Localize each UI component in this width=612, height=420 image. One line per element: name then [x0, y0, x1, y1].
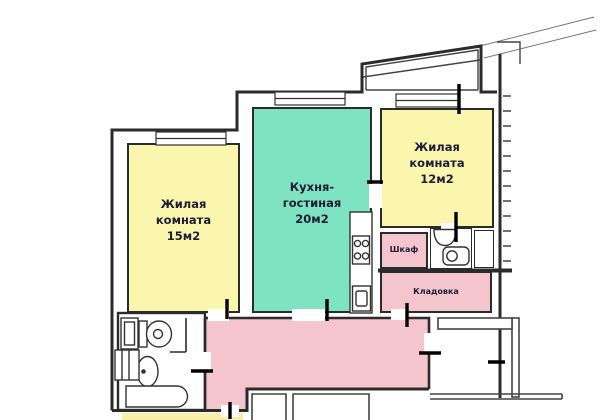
window-living2-icon: [396, 94, 458, 107]
wall-notch: [497, 42, 520, 64]
balcony: [363, 50, 480, 90]
washing-box-icon: [121, 318, 138, 349]
room-living-2: [380, 108, 494, 228]
room-living-1: [127, 143, 240, 313]
room-wc: [430, 228, 472, 269]
room-closet-shkaf: [380, 232, 428, 269]
duct-shaft: [474, 230, 494, 268]
room-hallway: [205, 318, 429, 411]
wall-hatch: [503, 96, 511, 261]
sink-icon: [137, 357, 158, 387]
floor-plan: Жилая комната 15м2 Кухня- гостиная 20м2 …: [0, 0, 612, 420]
bathroom-fixtures: [115, 318, 188, 407]
room-kladovka: [380, 271, 492, 313]
vent-shaft-icon: [115, 350, 139, 380]
roof-lines: [480, 17, 596, 58]
window-kitchen-icon: [275, 92, 345, 105]
toilet-icon: [139, 321, 172, 347]
bathtub-icon: [126, 386, 188, 407]
neighbor-flat-strip: [122, 413, 243, 420]
room-kitchen-living: [252, 107, 372, 313]
